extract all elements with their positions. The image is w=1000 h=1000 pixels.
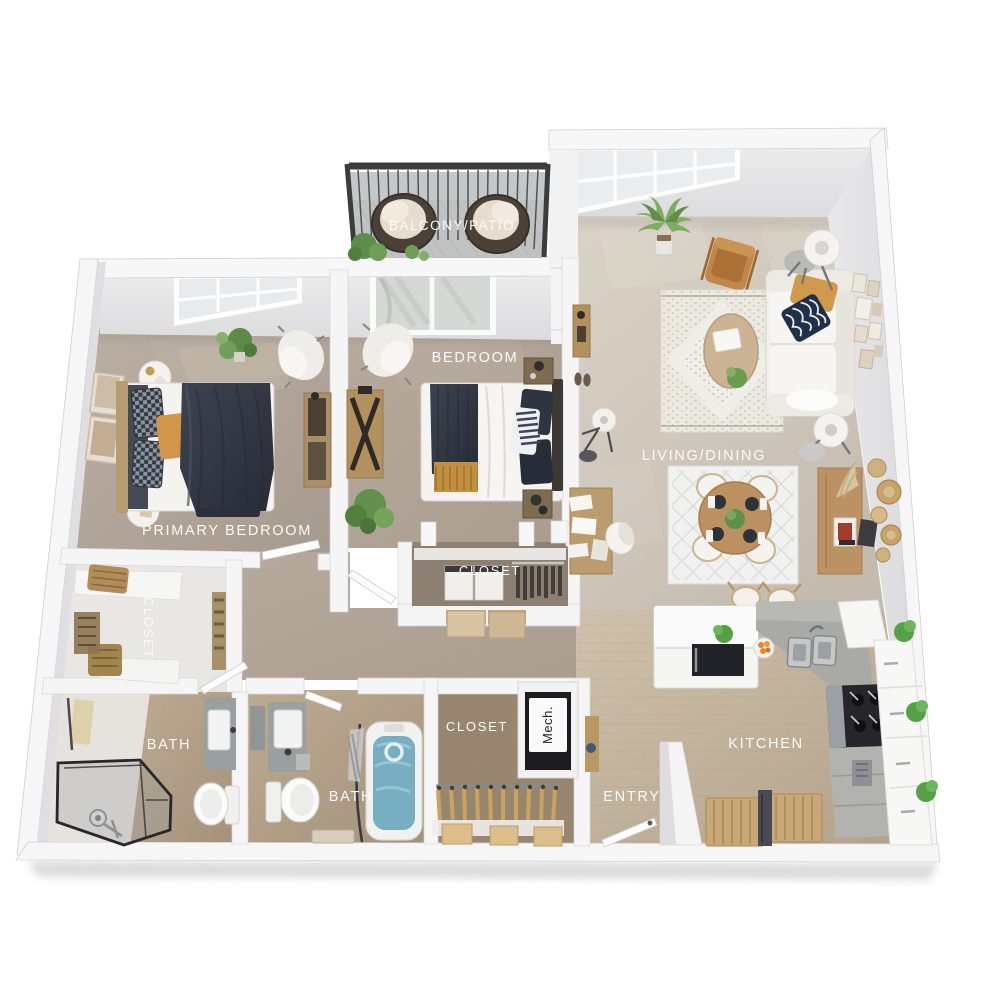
svg-text:BALCONY/PATIO: BALCONY/PATIO [389,218,515,233]
svg-text:CLOSET: CLOSET [459,563,521,578]
svg-text:LIVING/DINING: LIVING/DINING [642,448,766,464]
svg-text:CLOSET: CLOSET [446,719,508,734]
svg-text:PRIMARY BEDROOM: PRIMARY BEDROOM [142,523,312,539]
svg-text:BATH: BATH [147,737,191,753]
svg-text:Mech.: Mech. [540,706,555,744]
svg-text:BEDROOM: BEDROOM [432,350,519,366]
svg-text:ENTRY: ENTRY [603,789,660,805]
svg-text:KITCHEN: KITCHEN [728,736,804,752]
svg-text:CLOSET: CLOSET [141,597,156,659]
svg-text:BATH: BATH [329,789,373,805]
